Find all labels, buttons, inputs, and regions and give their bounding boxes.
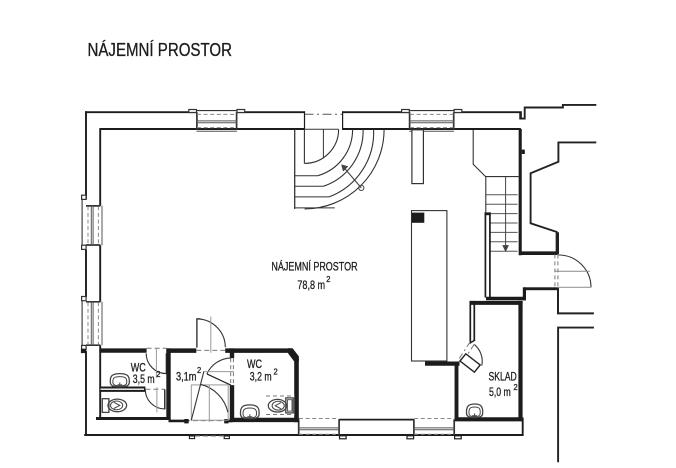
svg-text:3,5 m: 3,5 m <box>133 372 155 386</box>
svg-text:3,1m: 3,1m <box>176 370 197 384</box>
svg-text:NÁJEMNÍ PROSTOR: NÁJEMNÍ PROSTOR <box>271 258 357 273</box>
svg-text:78,8 m: 78,8 m <box>297 278 325 292</box>
svg-text:2: 2 <box>274 368 279 377</box>
svg-text:2: 2 <box>514 383 519 392</box>
svg-text:5,0 m: 5,0 m <box>489 385 511 399</box>
svg-text:SKLAD: SKLAD <box>489 369 517 383</box>
svg-text:3,2 m: 3,2 m <box>250 370 272 384</box>
svg-text:2: 2 <box>156 370 161 379</box>
svg-text:2: 2 <box>326 275 331 284</box>
svg-text:WC: WC <box>247 357 262 371</box>
svg-text:2: 2 <box>197 366 202 375</box>
svg-text:NÁJEMNÍ PROSTOR: NÁJEMNÍ PROSTOR <box>88 40 233 60</box>
